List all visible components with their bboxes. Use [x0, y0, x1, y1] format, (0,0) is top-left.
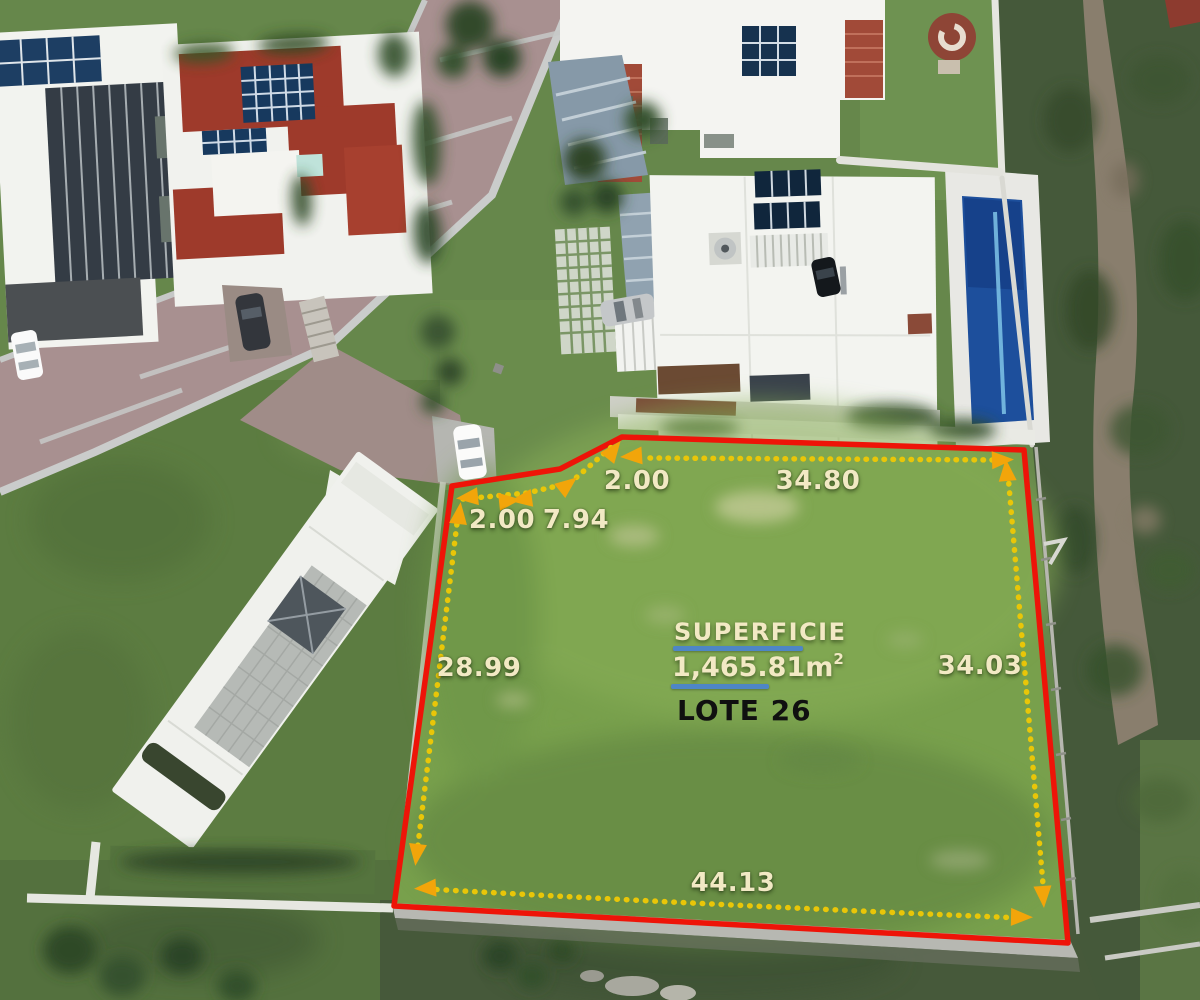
dimension-label-bottom: 44.13: [691, 868, 776, 898]
dimension-label-seg-a: 2.00: [469, 505, 535, 535]
superficie-underline: [673, 646, 803, 651]
superficie-title: SUPERFICIE: [674, 618, 847, 646]
area-unit: m: [805, 652, 833, 683]
annotation-overlay: 2.00 7.94 2.00 34.80 28.99 34.03 44.13 S…: [0, 0, 1200, 1000]
dimension-label-left: 28.99: [437, 653, 522, 683]
area-value: 1,465.81m2: [672, 652, 844, 683]
area-number: 1,465.81: [672, 652, 805, 683]
dimension-label-seg-b: 7.94: [543, 505, 609, 535]
dimension-label-seg-c: 2.00: [604, 466, 670, 496]
lot-number-label: LOTE 26: [677, 694, 812, 727]
dimension-label-top: 34.80: [776, 466, 861, 496]
area-superscript: 2: [833, 650, 843, 668]
area-underline: [671, 684, 769, 689]
dimension-label-right: 34.03: [938, 651, 1023, 681]
aerial-lot-listing: 2.00 7.94 2.00 34.80 28.99 34.03 44.13 S…: [0, 0, 1200, 1000]
